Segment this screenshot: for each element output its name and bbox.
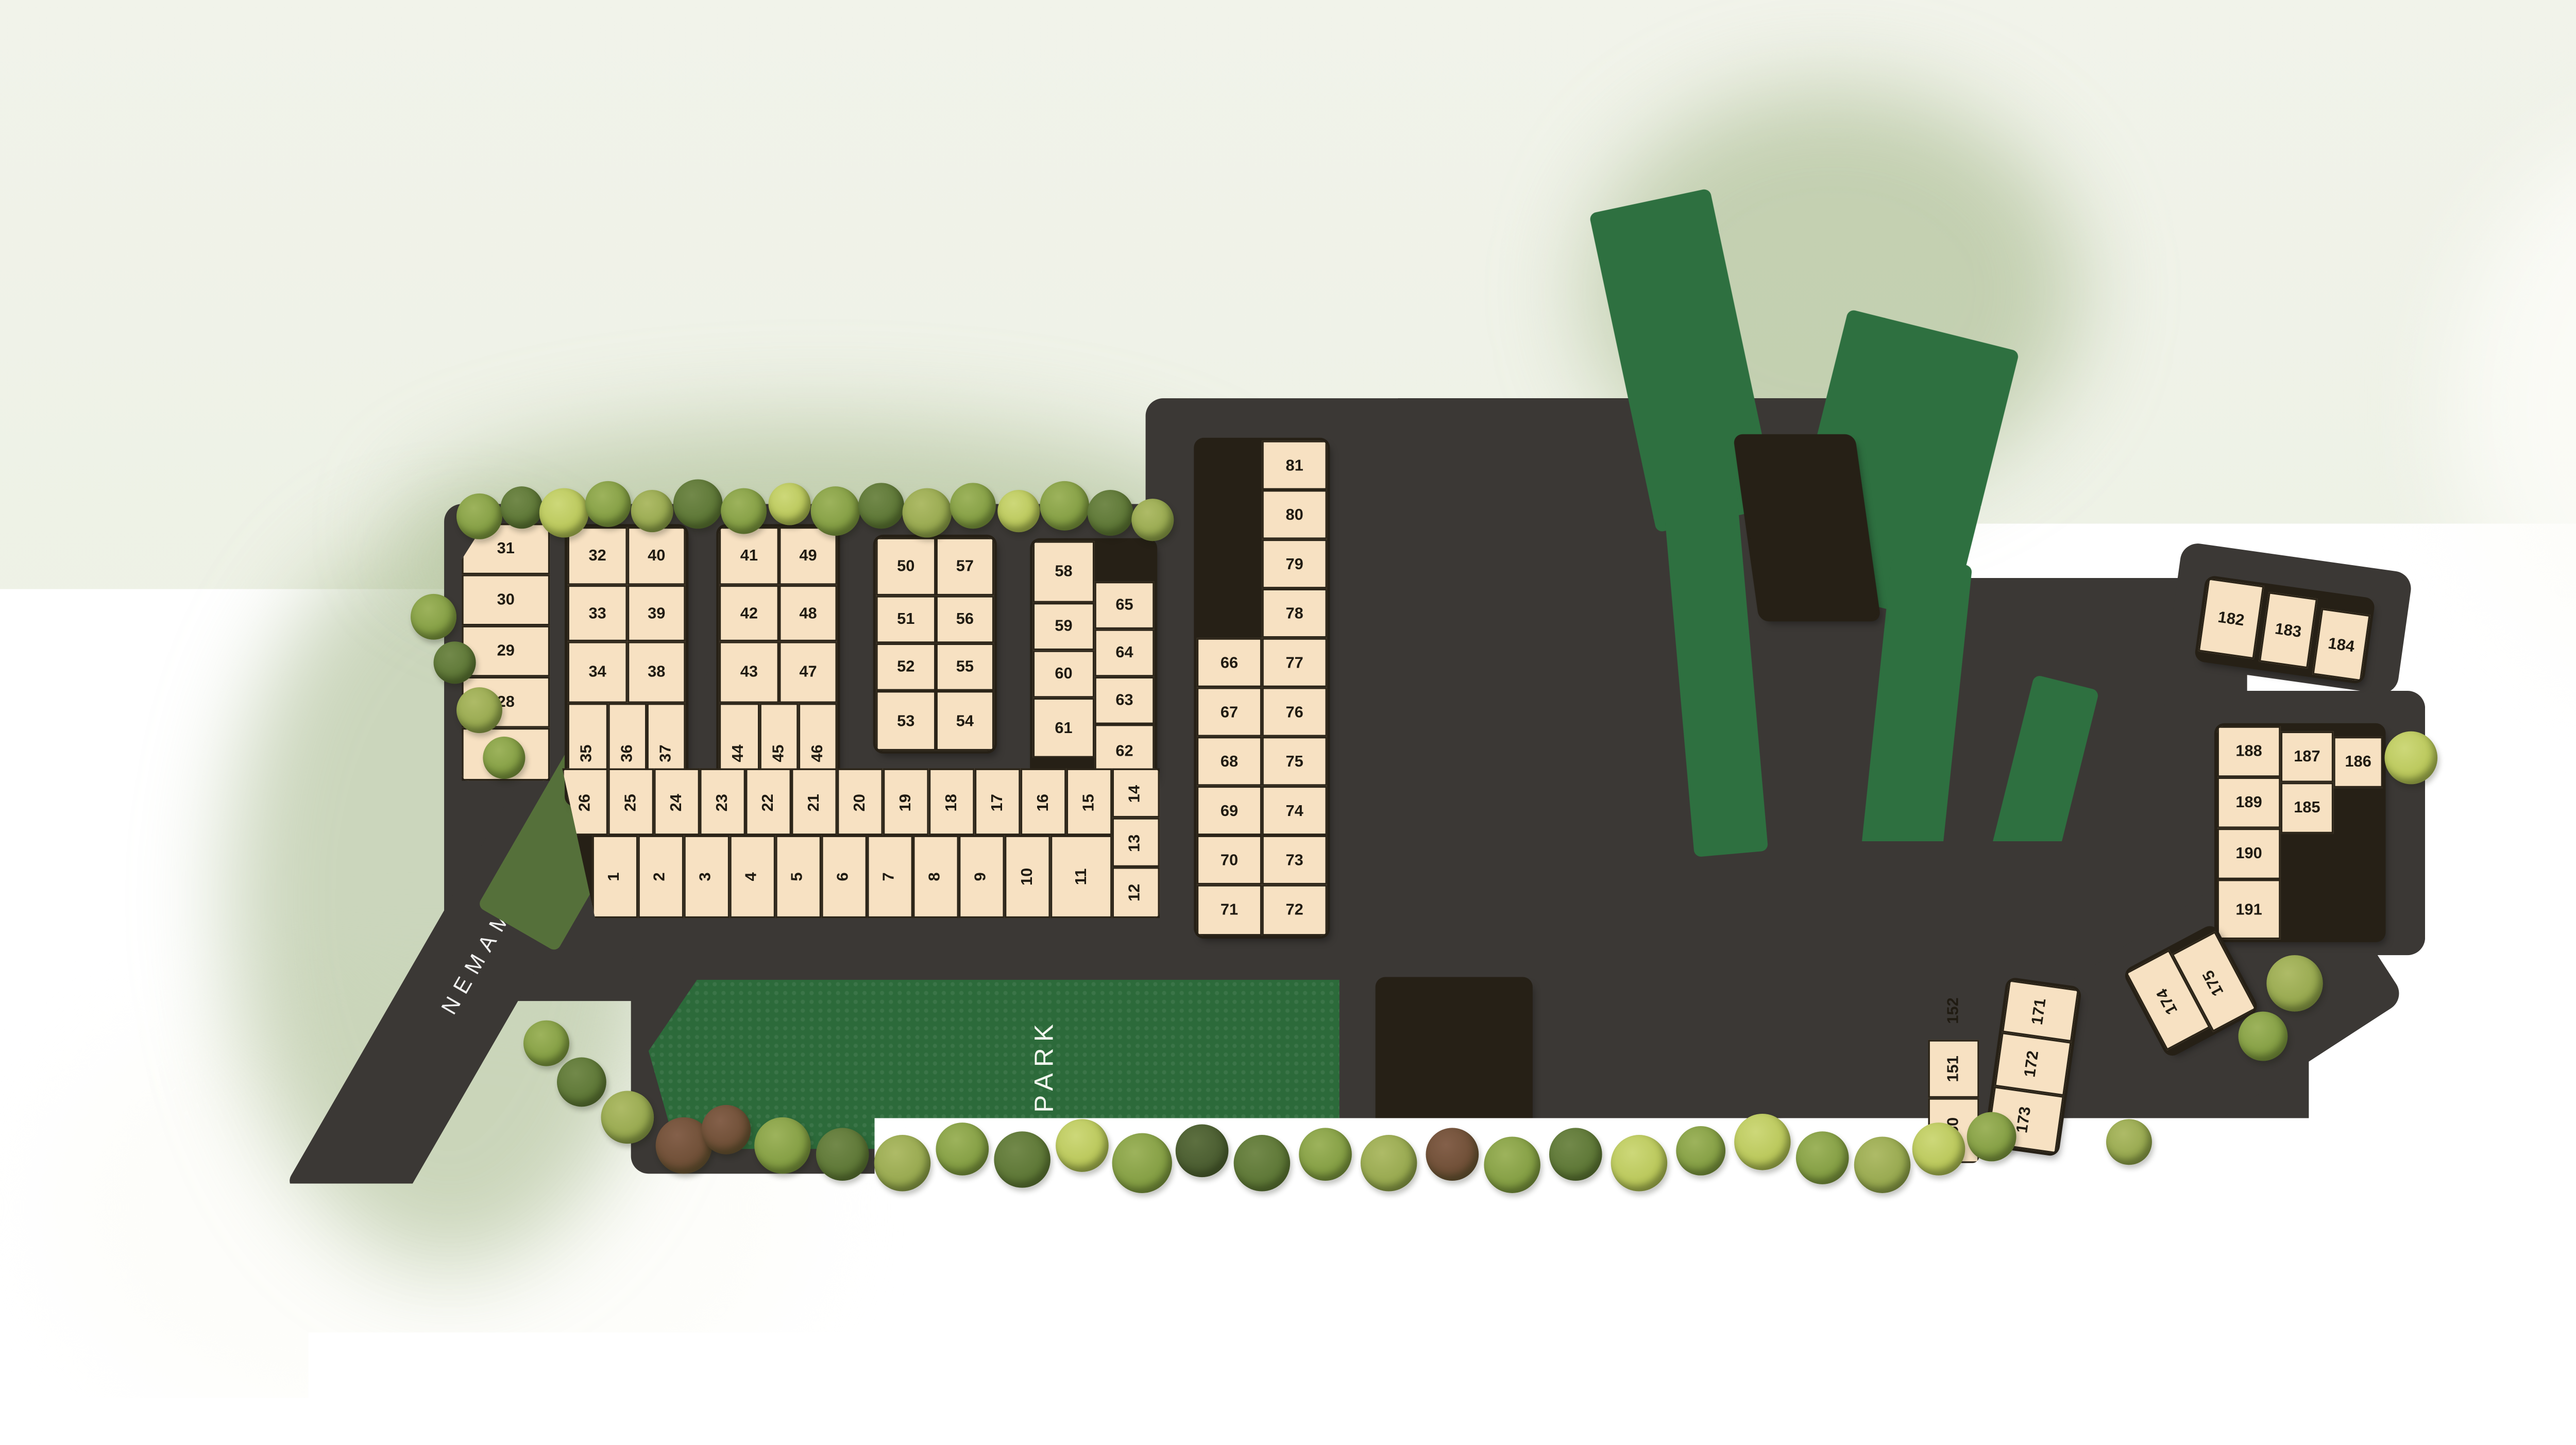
plot-25[interactable]: 25	[608, 769, 654, 836]
plot-107[interactable]: 107	[1454, 1034, 1530, 1089]
plot-112[interactable]: 112	[1452, 700, 1530, 744]
plot-21[interactable]: 21	[791, 769, 837, 836]
plot-number: 215	[1846, 654, 1869, 667]
compass-north: N	[2376, 1219, 2388, 1272]
plot-66[interactable]: 66	[1197, 638, 1262, 687]
plot-79[interactable]: 79	[1262, 539, 1327, 589]
plot-number: 127	[1648, 480, 1664, 506]
plot-39[interactable]: 39	[628, 585, 686, 641]
plot-111[interactable]: 111	[1452, 744, 1530, 788]
plot-89[interactable]: 89	[1378, 154, 1454, 205]
tree	[1912, 1123, 1965, 1176]
plot-number: 3	[699, 872, 715, 881]
plot-117[interactable]: 117	[1452, 479, 1530, 523]
plot-number: 68	[1221, 753, 1238, 769]
plot-number: 138	[1689, 1085, 1705, 1111]
plot-number: 139	[1794, 1089, 1810, 1115]
plot-number: 16	[1036, 793, 1052, 810]
tree	[2143, 381, 2193, 430]
tree	[1796, 1131, 1849, 1184]
tree	[1110, 215, 1174, 278]
plot-number: 62	[1115, 744, 1133, 760]
plot-93[interactable]: 93	[1378, 358, 1454, 412]
plot-cell-blank	[1745, 360, 1791, 434]
plot-number: 21	[806, 793, 822, 810]
plot-7[interactable]: 7	[867, 836, 913, 919]
plot-151[interactable]: 151	[1928, 1040, 1979, 1098]
plot-115[interactable]: 115	[1452, 568, 1530, 612]
tree	[2097, 206, 2150, 259]
plot-number: 225	[1650, 568, 1663, 589]
plot-33[interactable]: 33	[568, 585, 628, 641]
plot-92[interactable]: 92	[1378, 307, 1454, 358]
plot-100[interactable]: 100	[1373, 700, 1452, 744]
plot-169[interactable]: 169	[2020, 775, 2090, 835]
tree	[411, 594, 456, 640]
plot-124[interactable]: 124	[1454, 102, 1530, 153]
plot-20[interactable]: 20	[837, 769, 883, 836]
plot-number: 222	[1553, 658, 1577, 671]
plot-91[interactable]: 91	[1378, 256, 1454, 307]
plot-205[interactable]: 205	[1615, 775, 1643, 828]
plot-183[interactable]: 183	[2259, 592, 2317, 669]
plot-189[interactable]: 189	[2217, 777, 2280, 828]
plot-67[interactable]: 67	[1197, 687, 1262, 737]
plot-23[interactable]: 23	[700, 769, 745, 836]
plot-158[interactable]: 158	[1921, 257, 1992, 316]
tree	[1417, 49, 1466, 99]
plot-number: 228	[1823, 579, 1838, 600]
plot-number: 73	[1285, 852, 1303, 868]
plot-125[interactable]: 125	[1565, 440, 1595, 542]
plot-number: 146	[1894, 880, 1910, 907]
plot-60[interactable]: 60	[1033, 650, 1095, 698]
plot-70[interactable]: 70	[1197, 836, 1262, 885]
plot-81[interactable]: 81	[1262, 440, 1327, 490]
plot-5[interactable]: 5	[775, 836, 821, 919]
plot-195[interactable]: 195	[1926, 828, 1976, 871]
tree	[523, 1021, 569, 1066]
plot-99[interactable]: 99	[1373, 656, 1452, 700]
plot-190[interactable]: 190	[2217, 828, 2280, 879]
plot-number: 204	[1650, 791, 1663, 812]
plot-168[interactable]: 168	[2035, 526, 2106, 586]
plot-113[interactable]: 113	[1452, 656, 1530, 700]
tree	[721, 488, 767, 534]
plot-155[interactable]: 155	[1907, 415, 1978, 473]
plot-47[interactable]: 47	[779, 641, 837, 703]
plot-74[interactable]: 74	[1262, 786, 1327, 836]
plot-number: 111	[1479, 758, 1503, 774]
plot-224[interactable]: 224	[1593, 546, 1635, 611]
plot-number: 91	[1408, 273, 1424, 290]
plot-63[interactable]: 63	[1094, 677, 1154, 724]
block-50-57: 5057515652555354	[876, 537, 994, 751]
plot-90[interactable]: 90	[1378, 205, 1454, 256]
plot-164[interactable]: 164	[2020, 316, 2091, 373]
plot-78[interactable]: 78	[1262, 589, 1327, 638]
block-66-81: 81807978777675747372666768697071	[1197, 440, 1327, 936]
plot-number: 6	[836, 872, 852, 881]
plot-142[interactable]: 142	[1801, 834, 1843, 923]
plot-131[interactable]: 131	[1664, 828, 1701, 922]
plot-32[interactable]: 32	[568, 527, 628, 585]
plot-110[interactable]: 110	[1479, 788, 1530, 934]
plot-135[interactable]: 135	[1569, 980, 1607, 1059]
plot-101[interactable]: 101	[1373, 744, 1452, 788]
plot-number: 174	[2155, 984, 2181, 1015]
plot-188[interactable]: 188	[2217, 726, 2280, 777]
plot-number: 93	[1408, 376, 1424, 394]
plot-number: 26	[577, 793, 593, 810]
plot-number: 119	[1484, 372, 1500, 398]
plot-148[interactable]: 148	[1877, 1040, 1928, 1098]
plot-104[interactable]: 104	[1378, 1034, 1454, 1089]
plot-number: 199	[1895, 691, 1908, 712]
plot-192[interactable]: 192	[1926, 702, 1976, 744]
plot-77[interactable]: 77	[1262, 638, 1327, 687]
plot-143[interactable]: 143	[1657, 360, 1701, 434]
plot-number: 105	[1408, 1105, 1424, 1131]
plot-15[interactable]: 15	[1066, 769, 1112, 836]
tree	[673, 479, 723, 529]
plot-54[interactable]: 54	[936, 691, 994, 751]
plot-194[interactable]: 194	[1926, 786, 1976, 828]
plot-number: 167	[2058, 489, 2075, 516]
tree	[1514, 69, 1560, 114]
plot-140[interactable]: 140	[1762, 980, 1842, 1059]
plot-193[interactable]: 193	[1926, 744, 1976, 786]
plot-108[interactable]: 108	[1454, 980, 1530, 1034]
block-146-199: 199198197196146192193194195153	[1877, 680, 1976, 937]
plot-201[interactable]: 201	[1789, 786, 1815, 834]
tree	[874, 1135, 930, 1191]
plot-52[interactable]: 52	[876, 643, 936, 691]
plot-214[interactable]: 214	[1834, 689, 1879, 744]
plot-number: 38	[648, 665, 665, 681]
plot-59[interactable]: 59	[1033, 603, 1095, 650]
plot-129[interactable]: 129	[1593, 828, 1628, 922]
plot-number: 209	[1596, 721, 1619, 734]
plot-4[interactable]: 4	[730, 836, 775, 919]
plot-number: 88	[1408, 119, 1424, 137]
plot-number: 114	[1478, 625, 1504, 641]
plot-179[interactable]: 179	[2101, 728, 2179, 779]
plot-13[interactable]: 13	[1112, 818, 1160, 867]
plot-132[interactable]: 132	[1685, 980, 1720, 1054]
tree	[501, 486, 543, 529]
plot-number: 31	[497, 541, 515, 557]
plot-number: 19	[898, 793, 914, 810]
plot-number: 237	[1750, 458, 1765, 479]
plot-180[interactable]: 180	[2101, 677, 2179, 728]
plot-202[interactable]: 202	[1762, 786, 1789, 834]
plot-162[interactable]: 162	[2013, 210, 2083, 267]
plot-number: 187	[2294, 749, 2320, 765]
plot-number: 220	[1620, 658, 1643, 671]
plot-number: 11	[1073, 869, 1089, 886]
tree	[539, 488, 589, 538]
plot-18[interactable]: 18	[929, 769, 975, 836]
plot-48[interactable]: 48	[779, 585, 837, 641]
plot-number: 81	[1285, 457, 1303, 473]
plot-163[interactable]: 163	[2016, 263, 2087, 320]
plot-147[interactable]: 147	[1877, 980, 1928, 1040]
plot-1[interactable]: 1	[592, 836, 638, 919]
block-32-40: 324033393438353637	[568, 527, 686, 804]
plot-12[interactable]: 12	[1112, 867, 1160, 918]
plot-10[interactable]: 10	[1005, 836, 1050, 919]
plot-number: 234	[1782, 492, 1805, 505]
plot-159[interactable]: 159	[1926, 204, 1997, 263]
plot-number: 47	[799, 665, 817, 681]
plot-119[interactable]: 119	[1454, 358, 1530, 412]
plot-49[interactable]: 49	[779, 527, 837, 585]
plot-126[interactable]: 126	[1595, 440, 1632, 545]
tree	[1234, 1135, 1290, 1191]
plot-number: 29	[497, 643, 515, 659]
plot-178[interactable]: 178	[2101, 779, 2179, 830]
plot-122[interactable]: 122	[1454, 205, 1530, 256]
plot-172[interactable]: 172	[1994, 1032, 2072, 1096]
plot-number: 122	[1484, 217, 1500, 243]
tree	[1206, 321, 1255, 370]
plot-number: 60	[1055, 666, 1072, 682]
plot-number: 195	[1945, 839, 1958, 860]
plot-53[interactable]: 53	[876, 691, 936, 751]
tree	[994, 1131, 1050, 1187]
plot-number: 158	[1948, 272, 1966, 300]
plot-17[interactable]: 17	[975, 769, 1021, 836]
plot-41[interactable]: 41	[719, 527, 779, 585]
tree	[483, 737, 525, 779]
plot-98[interactable]: 98	[1373, 611, 1452, 656]
plot-number: 159	[1953, 219, 1971, 247]
plot-number: 200	[1823, 799, 1836, 820]
tree	[1609, 194, 1658, 243]
plot-number: 145	[1691, 315, 1707, 341]
plot-76[interactable]: 76	[1262, 687, 1327, 737]
plot-127[interactable]: 127	[1632, 440, 1680, 546]
plot-number: 175	[2201, 966, 2227, 997]
plot-225[interactable]: 225	[1636, 546, 1678, 611]
plot-80[interactable]: 80	[1262, 490, 1327, 539]
plot-number: 155	[1934, 430, 1952, 458]
plot-number: 66	[1221, 655, 1238, 671]
plot-number: 126	[1605, 479, 1621, 505]
plot-number: 216	[1813, 654, 1836, 667]
plot-186[interactable]: 186	[2333, 737, 2383, 788]
plot-177[interactable]: 177	[2101, 830, 2179, 881]
plot-128[interactable]: 128	[1558, 828, 1593, 922]
plot-144[interactable]: 144	[1701, 360, 1745, 434]
plot-197[interactable]: 197	[1877, 765, 1926, 807]
plot-154[interactable]: 154	[1903, 468, 1974, 532]
tree	[950, 483, 996, 529]
plot-97[interactable]: 97	[1373, 568, 1452, 612]
plot-8[interactable]: 8	[913, 836, 959, 919]
plot-6[interactable]: 6	[821, 836, 867, 919]
tree	[1299, 1128, 1352, 1181]
plot-40[interactable]: 40	[628, 527, 686, 585]
plot-number: 70	[1221, 852, 1238, 868]
plot-number: 161	[2036, 173, 2053, 200]
plot-51[interactable]: 51	[876, 596, 936, 643]
plot-141[interactable]: 141	[1762, 834, 1801, 923]
plot-114[interactable]: 114	[1452, 611, 1530, 656]
plot-157[interactable]: 157	[1917, 310, 1988, 368]
plot-121[interactable]: 121	[1454, 256, 1530, 307]
plot-181[interactable]: 181	[2101, 625, 2179, 676]
plot-16[interactable]: 16	[1021, 769, 1066, 836]
plot-134[interactable]: 134	[1607, 980, 1646, 1059]
plot-number: 198	[1895, 733, 1908, 754]
plot-29[interactable]: 29	[462, 625, 550, 676]
plot-69[interactable]: 69	[1197, 786, 1262, 836]
plot-38[interactable]: 38	[628, 641, 686, 703]
plot-65[interactable]: 65	[1094, 582, 1154, 629]
plot-3[interactable]: 3	[684, 836, 730, 919]
plot-number: 134	[1619, 1006, 1635, 1032]
plot-number: 130	[1638, 862, 1654, 888]
plot-55[interactable]: 55	[936, 643, 994, 691]
plot-200[interactable]: 200	[1816, 786, 1844, 834]
tree	[1611, 1135, 1667, 1191]
plot-95[interactable]: 95	[1373, 479, 1452, 523]
plot-185[interactable]: 185	[2281, 783, 2334, 834]
plot-233[interactable]: 233	[1766, 437, 1809, 478]
plot-9[interactable]: 9	[959, 836, 1005, 919]
plot-94[interactable]: 94	[1373, 435, 1452, 480]
plot-167[interactable]: 167	[2031, 474, 2102, 531]
plot-58[interactable]: 58	[1033, 541, 1095, 603]
tree	[1040, 481, 1089, 531]
plot-156[interactable]: 156	[1912, 362, 1983, 421]
plot-24[interactable]: 24	[654, 769, 700, 836]
plot-152[interactable]: 152	[1928, 980, 1979, 1040]
plot-number: 182	[2217, 609, 2245, 628]
plot-number: 193	[1945, 754, 1958, 775]
plot-102[interactable]: 102	[1373, 788, 1426, 934]
plot-130[interactable]: 130	[1629, 828, 1664, 922]
plot-68[interactable]: 68	[1197, 737, 1262, 786]
plot-30[interactable]: 30	[462, 574, 550, 625]
tree	[1262, 60, 1353, 151]
tree	[754, 1117, 810, 1174]
plot-203[interactable]: 203	[1671, 775, 1701, 828]
plot-71[interactable]: 71	[1197, 885, 1262, 936]
plot-161[interactable]: 161	[2009, 158, 2080, 215]
plot-number: 194	[1945, 796, 1958, 818]
plot-14[interactable]: 14	[1112, 769, 1160, 818]
plot-11[interactable]: 11	[1050, 836, 1112, 919]
plot-116[interactable]: 116	[1452, 523, 1530, 568]
plot-number: 172	[2023, 1050, 2043, 1078]
plot-191[interactable]: 191	[2217, 879, 2280, 939]
plot-166[interactable]: 166	[2028, 421, 2098, 479]
plot-207[interactable]: 207	[1558, 775, 1586, 828]
plot-118[interactable]: 118	[1452, 435, 1530, 480]
plot-34[interactable]: 34	[568, 641, 628, 703]
plot-133[interactable]: 133	[1646, 980, 1685, 1059]
plot-number: 192	[1945, 712, 1958, 733]
plot-109[interactable]: 109	[1426, 788, 1479, 934]
plot-196[interactable]: 196	[1877, 807, 1926, 849]
plot-number: 39	[648, 605, 665, 621]
plot-176[interactable]: 176	[2101, 881, 2179, 939]
plot-170[interactable]: 170	[2020, 836, 2090, 901]
plot-number: 72	[1285, 903, 1303, 919]
plot-19[interactable]: 19	[883, 769, 929, 836]
plot-64[interactable]: 64	[1094, 629, 1154, 676]
plot-171[interactable]: 171	[2002, 980, 2079, 1042]
plot-43[interactable]: 43	[719, 641, 779, 703]
tree	[1734, 1114, 1790, 1170]
plot-number: 189	[2235, 795, 2262, 811]
plot-198[interactable]: 198	[1877, 723, 1926, 765]
plot-204[interactable]: 204	[1642, 775, 1671, 828]
plot-number: 25	[623, 793, 639, 810]
plot-72[interactable]: 72	[1262, 885, 1327, 936]
block-94-118: 9495969798991001011181171161151141131121…	[1373, 435, 1530, 934]
plot-96[interactable]: 96	[1373, 523, 1452, 568]
plot-73[interactable]: 73	[1262, 836, 1327, 885]
plot-22[interactable]: 22	[745, 769, 791, 836]
plot-165[interactable]: 165	[2024, 368, 2094, 426]
plot-56[interactable]: 56	[936, 596, 994, 643]
plot-187[interactable]: 187	[2281, 732, 2334, 783]
plot-137[interactable]: 137	[1621, 1059, 1674, 1146]
plot-199[interactable]: 199	[1877, 680, 1926, 722]
plot-number: 210	[1629, 721, 1652, 734]
plot-number: 76	[1285, 704, 1303, 720]
tree	[2384, 732, 2437, 785]
plot-number: 233	[1776, 451, 1799, 464]
plot-223[interactable]: 223	[1551, 546, 1593, 611]
plot-182[interactable]: 182	[2198, 578, 2264, 659]
plot-number: 34	[589, 665, 606, 681]
plot-184[interactable]: 184	[2312, 608, 2370, 682]
plot-206[interactable]: 206	[1586, 775, 1615, 828]
plot-42[interactable]: 42	[719, 585, 779, 641]
plot-50[interactable]: 50	[876, 537, 936, 596]
plot-number: 213	[1809, 710, 1832, 723]
tree	[936, 1123, 989, 1176]
plot-2[interactable]: 2	[638, 836, 684, 919]
tree	[1146, 62, 1216, 132]
plot-153[interactable]: 153	[1926, 871, 1976, 938]
plot-120[interactable]: 120	[1454, 307, 1530, 358]
plot-number: 173	[2015, 1106, 2035, 1134]
plot-number: 224	[1608, 568, 1621, 589]
plot-160[interactable]: 160	[1930, 151, 2002, 210]
plot-123[interactable]: 123	[1454, 154, 1530, 205]
plot-146[interactable]: 146	[1877, 849, 1926, 938]
tree	[1112, 1133, 1172, 1193]
tree	[2076, 145, 2132, 201]
plot-number: 171	[2031, 997, 2050, 1025]
block-169-170: 169170	[2020, 775, 2090, 900]
plot-75[interactable]: 75	[1262, 737, 1327, 786]
plot-234[interactable]: 234	[1772, 478, 1815, 520]
plot-number: 92	[1408, 324, 1424, 341]
plot-number: 45	[771, 744, 787, 762]
plot-103[interactable]: 103	[1378, 980, 1454, 1034]
plot-number: 61	[1055, 720, 1072, 736]
plot-57[interactable]: 57	[936, 537, 994, 596]
plot-number: 54	[956, 713, 974, 729]
plot-61[interactable]: 61	[1033, 698, 1095, 758]
